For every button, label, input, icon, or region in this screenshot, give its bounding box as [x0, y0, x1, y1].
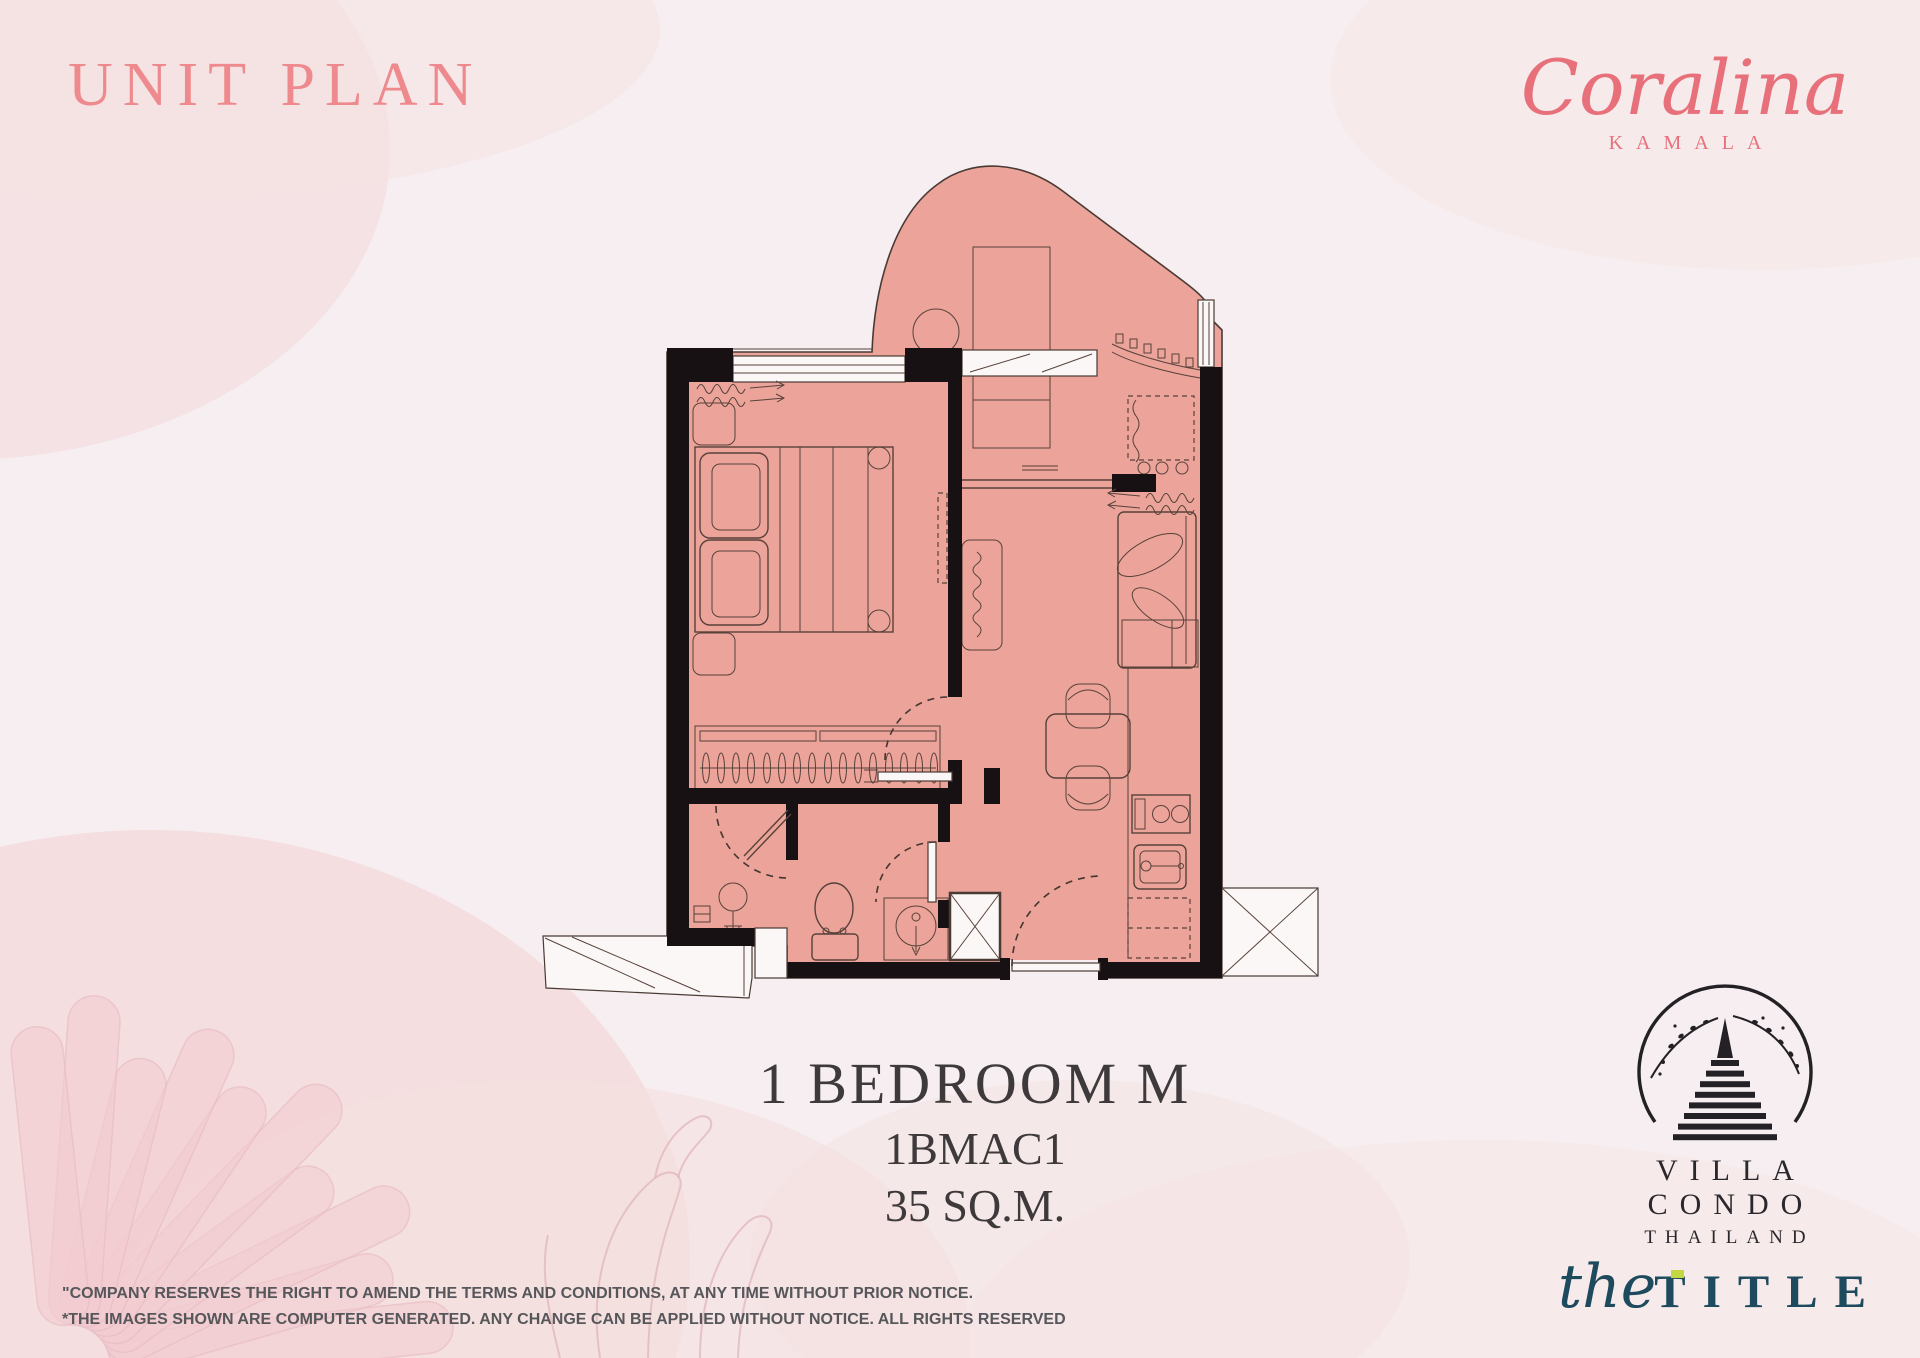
coralina-wordmark: Coralina — [1480, 48, 1890, 128]
floor-plan — [520, 120, 1340, 1020]
duct-shaft — [950, 893, 1000, 960]
lime-accent-mark — [1671, 1270, 1684, 1278]
coralina-location: KAMALA — [1480, 132, 1890, 155]
villa-condo-logo: VILLA CONDO THAILAND — [1563, 982, 1887, 1249]
disclaimer-line-2: *THE IMAGES SHOWN ARE COMPUTER GENERATED… — [62, 1307, 1066, 1333]
unit-area: 35 SQ.M. — [575, 1181, 1375, 1232]
disclaimer: "COMPANY RESERVES THE RIGHT TO AMEND THE… — [62, 1281, 1066, 1332]
coralina-logo: Coralina KAMALA — [1480, 48, 1890, 155]
unit-plan-page: UNIT PLAN Coralina KAMALA 1 BEDROOM M 1B… — [0, 0, 1920, 1358]
villa-condo-country: THAILAND — [1563, 1227, 1887, 1249]
unit-info: 1 BEDROOM M 1BMAC1 35 SQ.M. — [575, 1052, 1375, 1232]
living-window — [1198, 300, 1214, 367]
villa-condo-emblem-icon — [1613, 982, 1837, 1154]
title-wordmark: TITLE — [1654, 1265, 1883, 1319]
title-text: TITLE — [1654, 1266, 1883, 1318]
disclaimer-line-1: "COMPANY RESERVES THE RIGHT TO AMEND THE… — [62, 1281, 1066, 1307]
page-title: UNIT PLAN — [68, 50, 482, 121]
chedi-icon — [1673, 1018, 1777, 1140]
the-title-logo: the TITLE — [1558, 1252, 1898, 1322]
ac-ledge-right — [1222, 888, 1318, 976]
bedroom-window — [733, 356, 905, 382]
shaft — [755, 928, 787, 978]
villa-condo-name: VILLA CONDO — [1563, 1154, 1887, 1222]
unit-code: 1BMAC1 — [575, 1124, 1375, 1175]
unit-type: 1 BEDROOM M — [575, 1052, 1375, 1116]
title-prefix: the — [1558, 1252, 1656, 1322]
terrace-door — [962, 350, 1097, 376]
